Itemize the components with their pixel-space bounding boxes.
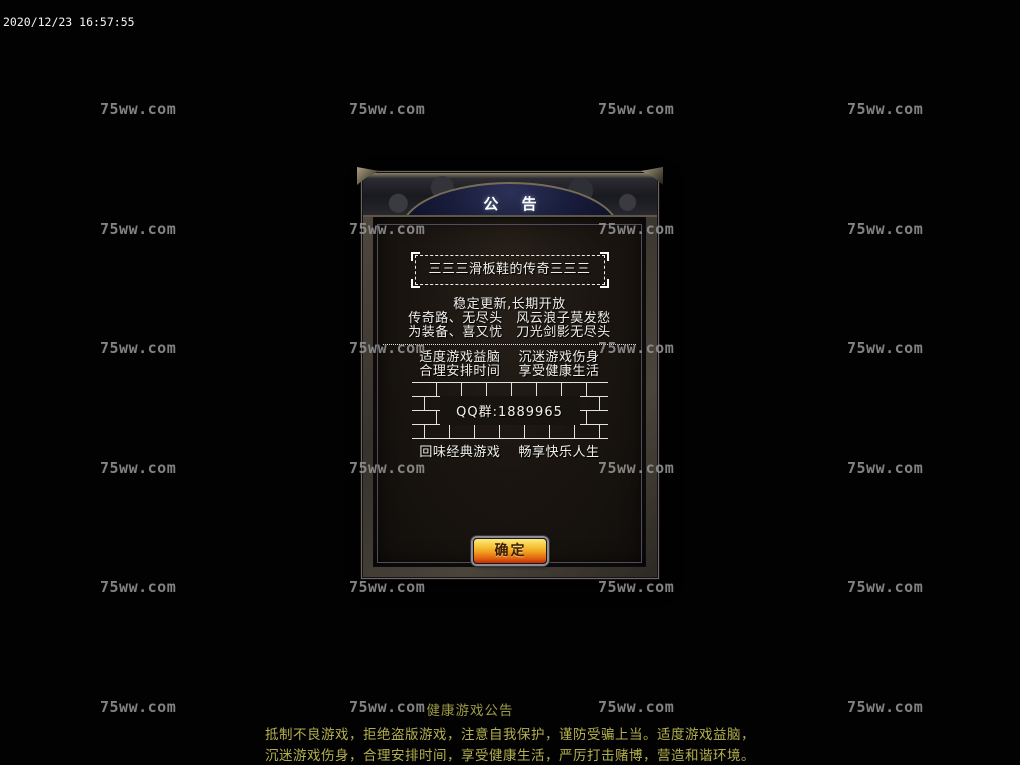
health-line: 适度游戏益脑 沉迷游戏伤身 [374, 351, 645, 365]
server-name-box: 三三三滑板鞋的传奇三三三 [415, 255, 605, 285]
server-name: 三三三滑板鞋的传奇三三三 [428, 263, 590, 277]
watermark-text: 75ww.com [100, 100, 176, 118]
dotted-divider [383, 344, 636, 345]
corner-bracket-icon [600, 252, 609, 261]
brick [461, 382, 487, 397]
health-notice-line: 沉迷游戏伤身，合理安排时间，享受健康生活，严厉打击赌博，营造和谐环境。 [0, 744, 1020, 764]
brick-row [412, 382, 608, 397]
game-screen: 2020/12/23 16:57:55 75ww.com75ww.com75ww… [0, 0, 1020, 765]
brick [574, 424, 600, 439]
corner-bracket-icon [600, 279, 609, 288]
dialog-title-arch: 公 告 [401, 182, 619, 217]
qq-brick-panel: QQ群:1889965 [412, 382, 608, 439]
brick [449, 424, 475, 439]
brick [586, 382, 608, 397]
timestamp: 2020/12/23 16:57:55 [3, 15, 135, 29]
brick [549, 424, 575, 439]
watermark-text: 75ww.com [100, 578, 176, 596]
watermark-text: 75ww.com [100, 339, 176, 357]
brick [536, 382, 562, 397]
watermark-text: 75ww.com [847, 220, 923, 238]
info-line: 为装备、喜又忧 刀光剑影无尽头 [374, 326, 645, 340]
watermark-text: 75ww.com [598, 100, 674, 118]
closing-line: 回味经典游戏 畅享快乐人生 [374, 446, 645, 460]
brick [499, 424, 525, 439]
watermark-text: 75ww.com [100, 220, 176, 238]
brick [436, 382, 462, 397]
health-line: 合理安排时间 享受健康生活 [374, 365, 645, 379]
confirm-button[interactable]: 确定 [473, 538, 547, 564]
brick [524, 424, 550, 439]
brick [561, 382, 587, 397]
dialog-header: 公 告 [363, 173, 657, 217]
health-tips: 适度游戏益脑 沉迷游戏伤身 合理安排时间 享受健康生活 [374, 351, 645, 379]
brick [486, 382, 512, 397]
dialog-body: 三三三滑板鞋的传奇三三三 稳定更新,长期开放 传奇路、无尽头 风云浪子莫发愁 为… [373, 217, 646, 567]
brick [424, 424, 450, 439]
corner-bracket-icon [411, 252, 420, 261]
watermark-text: 75ww.com [847, 578, 923, 596]
brick [599, 396, 608, 411]
watermark-text: 75ww.com [349, 578, 425, 596]
announcement-dialog: 公 告 三三三滑板鞋的传奇三三三 稳定更新,长期开放 传奇路、无尽头 风云浪子莫… [360, 170, 660, 580]
brick [511, 382, 537, 397]
watermark-text: 75ww.com [847, 339, 923, 357]
info-line: 传奇路、无尽头 风云浪子莫发愁 [374, 312, 645, 326]
info-line: 稳定更新,长期开放 [374, 298, 645, 312]
qq-group-label: QQ群:1889965 [440, 396, 580, 425]
watermark-text: 75ww.com [349, 100, 425, 118]
brick [412, 382, 437, 397]
brick [412, 410, 437, 425]
watermark-text: 75ww.com [847, 100, 923, 118]
brick [599, 424, 608, 439]
health-notice-title: 健康游戏公告 [0, 699, 980, 719]
corner-bracket-icon [411, 279, 420, 288]
brick-row [412, 424, 608, 439]
watermark-text: 75ww.com [598, 578, 674, 596]
health-notice-line: 抵制不良游戏，拒绝盗版游戏，注意自我保护，谨防受骗上当。适度游戏益脑， [0, 723, 1020, 743]
brick [586, 410, 608, 425]
watermark-text: 75ww.com [100, 459, 176, 477]
info-lines: 稳定更新,长期开放 传奇路、无尽头 风云浪子莫发愁 为装备、喜又忧 刀光剑影无尽… [374, 298, 645, 340]
watermark-text: 75ww.com [847, 459, 923, 477]
dialog-title: 公 告 [474, 193, 545, 217]
brick [474, 424, 500, 439]
